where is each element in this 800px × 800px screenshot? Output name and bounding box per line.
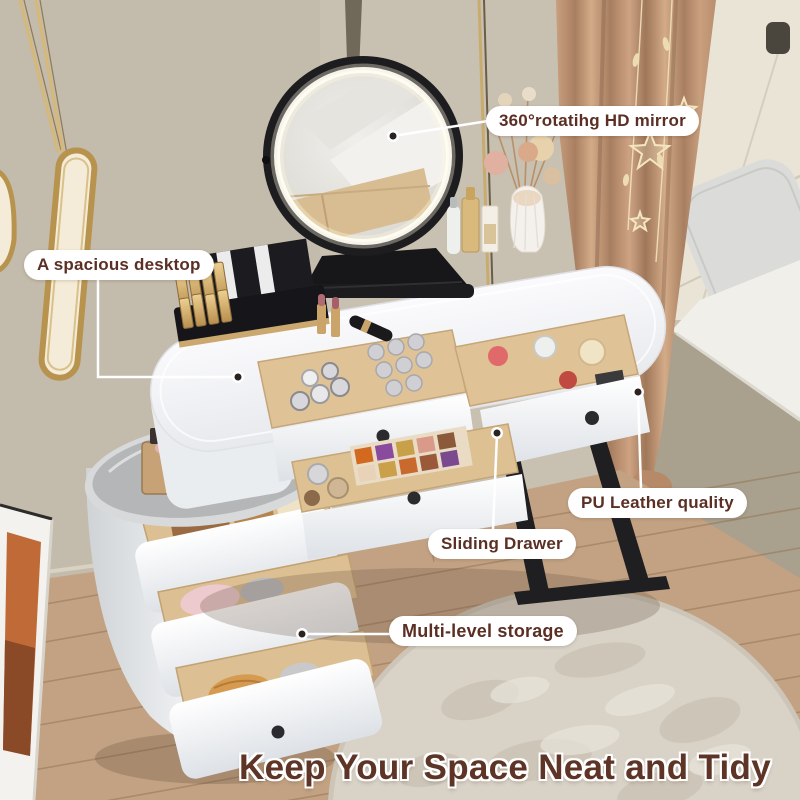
callout-dot-pu (632, 386, 644, 398)
drawer-knob (272, 726, 285, 739)
callout-dot-sliding (491, 427, 503, 439)
callout-label-storage: Multi-level storage (389, 616, 577, 646)
callout-label-desktop: A spacious desktop (24, 250, 214, 280)
callout-dot-desktop (232, 371, 244, 383)
headline-text: Keep Your Space Neat and Tidy (205, 748, 800, 788)
callout-label-sliding-drawer: Sliding Drawer (428, 529, 576, 559)
callout-label-pu-leather: PU Leather quality (568, 488, 747, 518)
product-image: 360°rotatihg HD mirror A spacious deskto… (0, 0, 800, 800)
callout-dot-storage (296, 628, 308, 640)
callout-dot-mirror (387, 130, 399, 142)
callout-label-mirror: 360°rotatihg HD mirror (486, 106, 699, 136)
drawer-knob (408, 492, 421, 505)
closet-handle (766, 22, 790, 54)
drawer-knob (585, 411, 599, 425)
